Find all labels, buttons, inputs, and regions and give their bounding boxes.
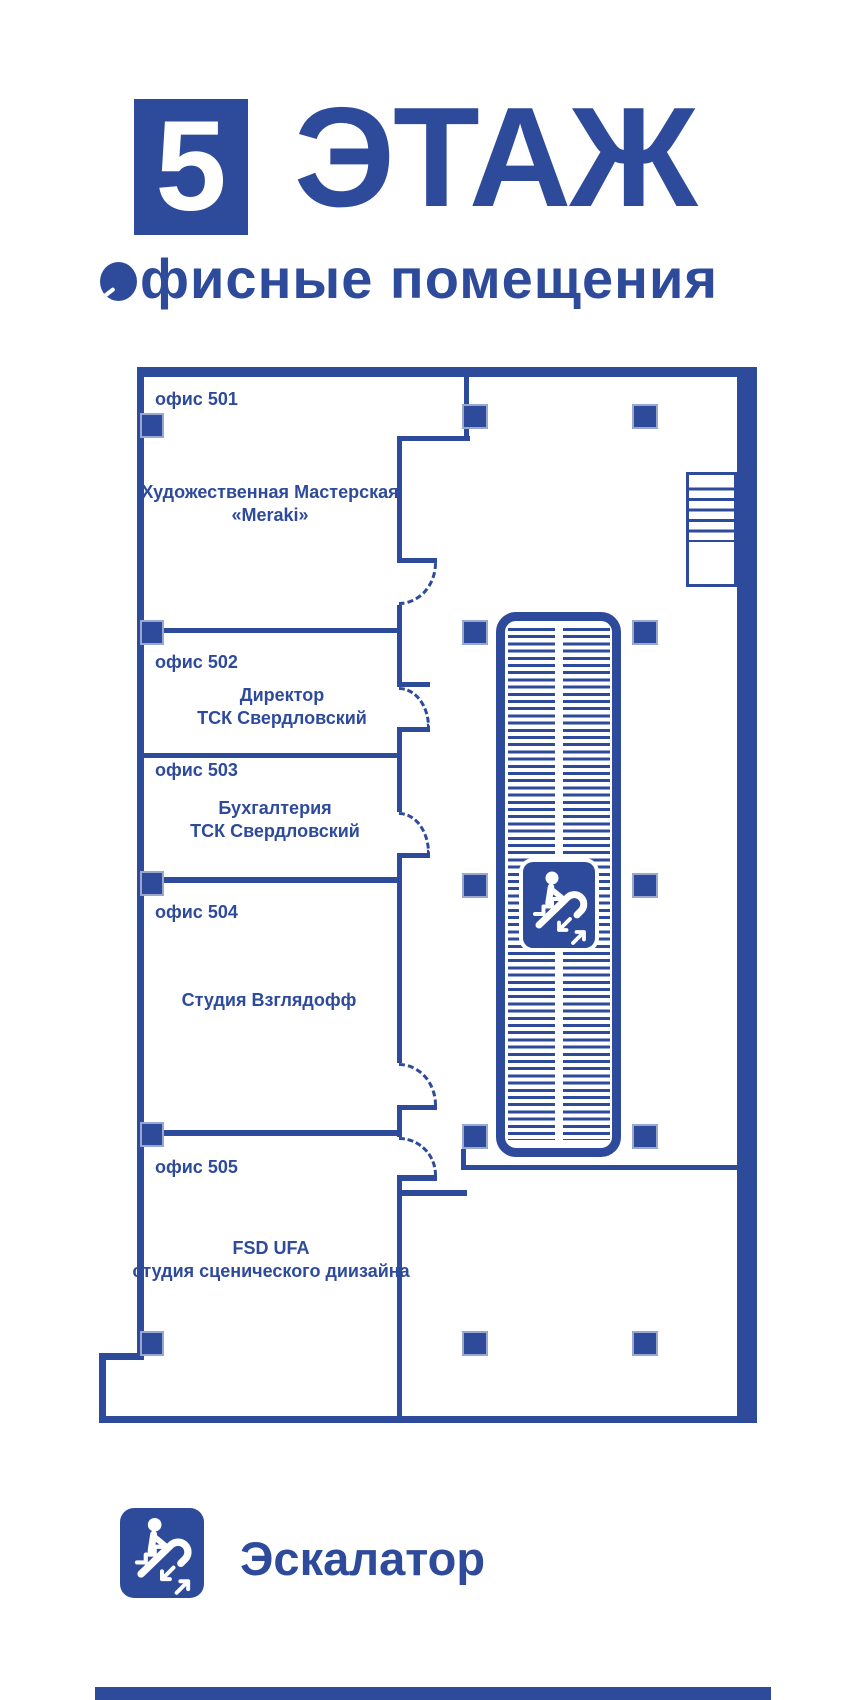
tenant-line: «Meraki» <box>140 504 400 527</box>
wall-left-lower <box>99 1353 106 1423</box>
pillar <box>140 413 164 438</box>
door-stub <box>397 1175 437 1181</box>
wall-partition <box>397 436 470 441</box>
office-501-tenant: Художественная Мастерская «Meraki» <box>140 481 400 527</box>
wall-bottom <box>99 1416 757 1423</box>
wall-top <box>137 367 757 377</box>
wall-corridor <box>397 853 402 1063</box>
floor-number-box: 5 <box>134 99 248 235</box>
legend-escalator-badge <box>120 1508 204 1598</box>
door-arc <box>399 812 430 853</box>
floor-sign-poster: 5 ЭТАЖ О фисные помещения <box>0 0 858 1700</box>
office-502-tenant: Директор ТСК Свердловский <box>162 684 402 730</box>
wall-divider-501-502 <box>144 628 399 633</box>
wall-corridor <box>397 605 402 687</box>
escalator-icon <box>120 1508 204 1598</box>
tenant-line: Бухгалтерия <box>155 797 395 820</box>
door-arc <box>399 687 430 727</box>
pillar <box>140 1331 164 1356</box>
wall-divider-502-503 <box>144 753 399 758</box>
floor-title: ЭТАЖ <box>294 87 696 229</box>
pillar <box>632 1124 658 1149</box>
pillar <box>462 620 488 645</box>
stairs <box>686 472 737 587</box>
pillar <box>140 1122 164 1147</box>
tenant-line: Директор <box>162 684 402 707</box>
pillar <box>632 1331 658 1356</box>
pillar <box>632 873 658 898</box>
pillar <box>632 404 658 429</box>
stair-treads <box>689 480 734 542</box>
office-505-label: офис 505 <box>155 1157 238 1178</box>
subtitle: О фисные помещения <box>100 250 718 306</box>
tenant-line: студия сценического диизайна <box>131 1260 411 1283</box>
wall-divider-504-505 <box>144 1130 399 1136</box>
escalator-badge <box>523 862 595 948</box>
tenant-line: Художественная Мастерская <box>140 481 400 504</box>
footer-bar <box>95 1687 771 1700</box>
door-arc <box>399 1063 437 1105</box>
office-504-tenant: Студия Взглядофф <box>139 989 399 1012</box>
office-505-tenant: FSD UFA студия сценического диизайна <box>131 1237 411 1283</box>
subtitle-text: фисные помещения <box>140 246 718 311</box>
pillar <box>632 620 658 645</box>
legend-label: Эскалатор <box>240 1531 485 1586</box>
office-502-label: офис 502 <box>155 652 238 673</box>
tenant-line: ТСК Свердловский <box>155 820 395 843</box>
tenant-line: Студия Взглядофф <box>139 989 399 1012</box>
escalator-icon <box>523 862 595 948</box>
office-501-label: офис 501 <box>155 389 238 410</box>
office-504-label: офис 504 <box>155 902 238 923</box>
office-503-label: офис 503 <box>155 760 238 781</box>
floor-number: 5 <box>155 103 226 231</box>
pillar <box>462 404 488 429</box>
wall-right <box>737 367 757 1423</box>
pillar <box>140 620 164 645</box>
pillar <box>462 1331 488 1356</box>
wall-corridor <box>397 727 402 812</box>
office-503-tenant: Бухгалтерия ТСК Свердловский <box>155 797 395 843</box>
wall-zone-horizontal <box>462 1165 737 1170</box>
tenant-line: ТСК Свердловский <box>162 707 402 730</box>
wall-corridor <box>397 1175 402 1421</box>
letter-o-logo: О <box>100 262 137 301</box>
wall-zone-connector <box>461 1149 466 1170</box>
wall-divider-503-504 <box>144 877 399 883</box>
pillar <box>462 873 488 898</box>
door-stub <box>397 1105 437 1110</box>
door-arc <box>399 1137 437 1175</box>
pillar <box>462 1124 488 1149</box>
wall-zone-step <box>399 1190 467 1196</box>
tenant-line: FSD UFA <box>131 1237 411 1260</box>
pillar <box>140 871 164 896</box>
door-arc <box>399 563 437 605</box>
